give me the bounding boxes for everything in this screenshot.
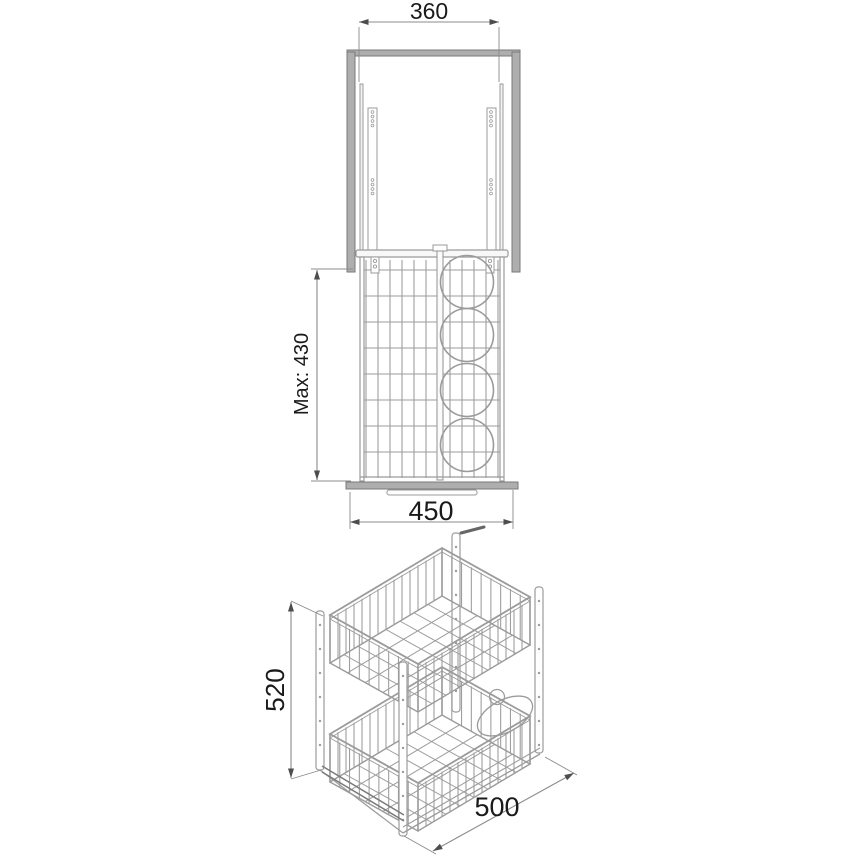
dim-base-width-label: 450 — [408, 496, 453, 526]
dim-height-label: 520 — [260, 668, 290, 711]
front-view: 360 Max: 430 450 — [291, 0, 520, 529]
cabinet-and-basket-front-view — [346, 50, 520, 495]
dim-depth-label: 500 — [474, 792, 519, 822]
dimension-base-width: 450 — [350, 490, 513, 529]
dim-top-width-label: 360 — [410, 0, 448, 24]
dim-max-height-label: Max: 430 — [291, 333, 313, 415]
dimension-top-width: 360 — [359, 0, 499, 82]
two-tier-basket-isometric — [316, 527, 543, 836]
dimension-max-height-lines — [311, 269, 353, 481]
dimension-max-height: Max: 430 — [291, 269, 353, 481]
technical-drawing-canvas: 360 Max: 430 450 520 500 — [0, 0, 860, 860]
drawing-page: 360 Max: 430 450 520 500 — [0, 0, 860, 860]
dimension-height: 520 — [260, 601, 323, 779]
isometric-view: 520 500 — [260, 527, 577, 854]
